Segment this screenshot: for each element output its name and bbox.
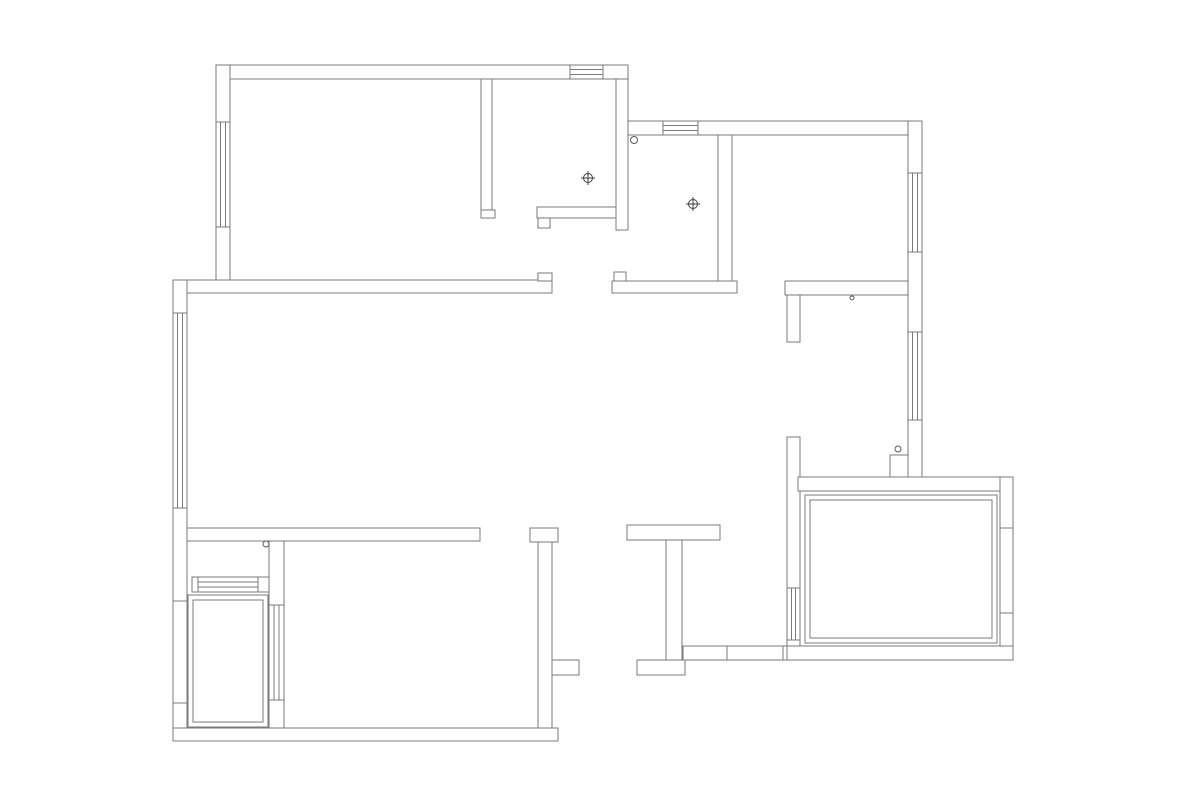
t-wall-foot: [552, 660, 579, 675]
master-left-window: [787, 588, 800, 640]
laundry-platform-outer: [188, 595, 268, 727]
t-wall-cap: [530, 528, 558, 542]
entry-right-wall: [718, 135, 732, 281]
bedroom1-top-wall: [216, 65, 628, 79]
master-bottom-wall: [787, 646, 1013, 660]
bedroom1-left-window: [216, 122, 230, 227]
laundry-partition-window: [269, 605, 284, 700]
entry-door-hinge: [631, 137, 638, 144]
laundry-door-hinge: [263, 541, 269, 547]
master-inner-rect-outer: [805, 495, 997, 643]
corridor-south-wall: [683, 646, 790, 660]
entry-bottom-jamb: [614, 272, 626, 281]
entry-bottom-wall: [612, 281, 737, 293]
closet-bottom-notch: [538, 218, 550, 228]
master-right-wall: [1000, 477, 1013, 660]
column-dot: [895, 446, 901, 452]
master-inner-rect-inner: [810, 500, 992, 638]
floor-plan-drawing: [0, 0, 1200, 806]
kitchen-wall-dot: [850, 296, 854, 300]
floor-plan-canvas: [0, 0, 1200, 806]
right-wall-window-lower: [908, 332, 922, 420]
bottom-outer-wall: [173, 728, 558, 741]
master-top-wall: [798, 477, 1013, 491]
laundry-window: [198, 577, 258, 592]
living-bottom-wall: [187, 528, 480, 541]
i-wall-foot-bar: [637, 660, 685, 675]
laundry-platform-inner: [193, 600, 263, 722]
t-wall-stem: [538, 542, 552, 741]
column: [890, 455, 908, 477]
living-top-wall: [173, 280, 552, 293]
kitchen-bottom-wall: [785, 281, 908, 295]
bedroom1-top-window: [570, 65, 603, 79]
entry-top-window: [663, 121, 698, 135]
living-left-window: [173, 313, 187, 508]
bedroom1-closet-wall: [481, 79, 492, 210]
living-top-wall-cap: [538, 273, 552, 281]
right-wall-window-upper: [908, 173, 922, 252]
closet-right-wall: [616, 79, 628, 230]
i-wall-stem: [666, 540, 682, 660]
bedroom1-closet-wall-foot: [481, 210, 495, 218]
closet-bottom-wall: [537, 207, 616, 218]
i-wall-top-bar: [627, 525, 720, 540]
kitchen-bottom-wall-leg: [787, 295, 800, 342]
